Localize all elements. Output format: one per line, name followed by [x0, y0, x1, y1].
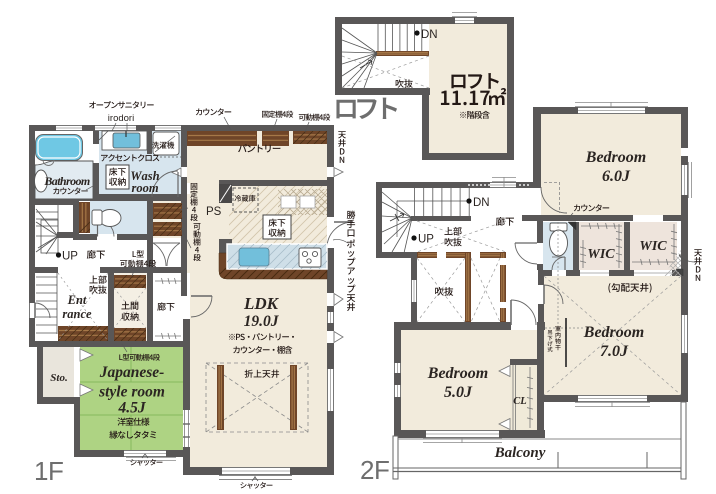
svg-text:DN: DN	[473, 197, 490, 209]
svg-text:2F: 2F	[360, 455, 389, 485]
svg-text:1F: 1F	[34, 456, 63, 486]
svg-text:Sto.: Sto.	[50, 372, 67, 384]
svg-text:Bathroom: Bathroom	[43, 174, 89, 188]
svg-text:6.0J: 6.0J	[602, 168, 631, 185]
svg-text:room: room	[131, 181, 158, 195]
svg-text:Balcony: Balcony	[494, 445, 546, 461]
svg-text:LDK: LDK	[243, 294, 280, 313]
svg-text:irodori: irodori	[108, 113, 134, 124]
svg-text:style room: style room	[98, 384, 165, 401]
svg-text:UP: UP	[418, 234, 434, 246]
svg-text:DN: DN	[421, 29, 438, 41]
svg-text:Bedroom: Bedroom	[583, 324, 644, 341]
svg-text:5.0J: 5.0J	[444, 384, 473, 401]
svg-text:Bedroom: Bedroom	[585, 149, 646, 166]
svg-text:PS: PS	[206, 206, 222, 218]
svg-text:4.5J: 4.5J	[117, 400, 146, 417]
svg-text:UP: UP	[62, 251, 78, 263]
svg-text:Ent: Ent	[67, 293, 87, 307]
svg-text:CL: CL	[513, 396, 526, 407]
svg-text:WIC: WIC	[587, 247, 615, 262]
svg-text:19.0J: 19.0J	[244, 313, 280, 330]
svg-text:WIC: WIC	[639, 239, 667, 254]
svg-text:Bedroom: Bedroom	[427, 365, 488, 382]
svg-text:7.0J: 7.0J	[600, 343, 629, 360]
svg-text:Japanese-: Japanese-	[99, 364, 165, 381]
svg-text:rance: rance	[62, 307, 92, 321]
